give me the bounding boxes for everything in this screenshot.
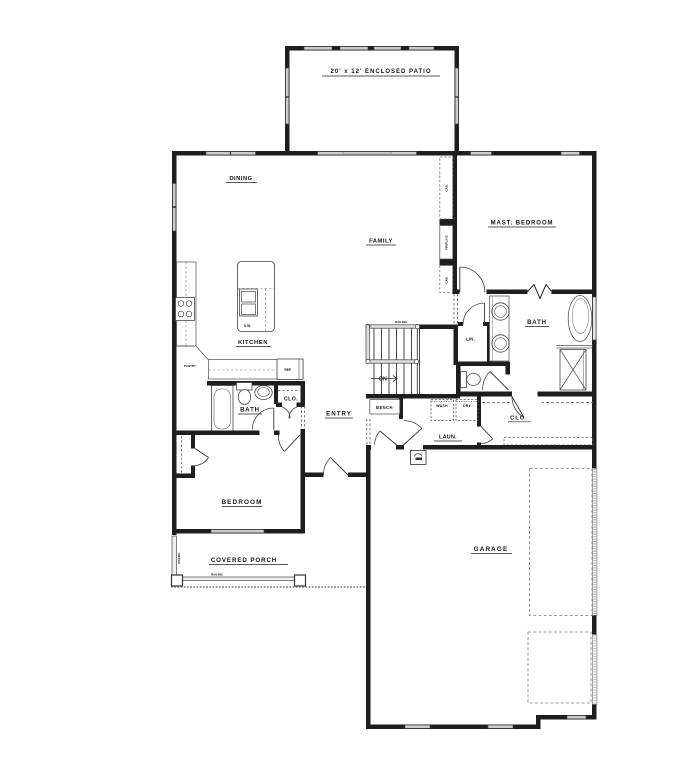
svg-text:20' x 12' ENCLOSED PATIO: 20' x 12' ENCLOSED PATIO: [331, 69, 432, 75]
svg-text:CAB.: CAB.: [445, 276, 449, 283]
svg-text:LIN.: LIN.: [466, 337, 475, 342]
svg-text:ENTRY: ENTRY: [326, 411, 352, 418]
svg-text:BATH: BATH: [240, 408, 260, 414]
svg-text:BATH: BATH: [527, 320, 547, 326]
svg-text:RAILING: RAILING: [177, 552, 181, 563]
svg-text:RAILING: RAILING: [395, 320, 408, 324]
svg-text:DN: DN: [379, 377, 387, 383]
svg-text:LAUN.: LAUN.: [439, 435, 457, 441]
svg-text:KITCHEN: KITCHEN: [238, 340, 268, 346]
svg-text:PANTRY: PANTRY: [184, 364, 196, 368]
svg-text:CLO.: CLO.: [510, 416, 528, 422]
svg-text:MAST. BEDROOM: MAST. BEDROOM: [491, 221, 554, 227]
svg-text:BENCH: BENCH: [376, 405, 393, 410]
svg-text:BEDROOM: BEDROOM: [221, 499, 262, 506]
svg-text:REF.: REF.: [284, 368, 291, 372]
svg-text:DRY: DRY: [463, 404, 471, 408]
svg-text:CLO.: CLO.: [284, 397, 298, 403]
svg-text:WASH: WASH: [436, 404, 448, 408]
svg-text:DINING: DINING: [229, 176, 252, 182]
svg-text:GARAGE: GARAGE: [474, 546, 509, 553]
svg-text:FAMILY: FAMILY: [369, 239, 393, 245]
svg-text:CAB.: CAB.: [445, 184, 449, 191]
svg-text:FIREPLACE: FIREPLACE: [445, 235, 449, 250]
svg-text:D.W.: D.W.: [244, 324, 251, 328]
svg-text:RAILING: RAILING: [211, 573, 224, 577]
svg-text:COVERED PORCH: COVERED PORCH: [211, 557, 277, 564]
